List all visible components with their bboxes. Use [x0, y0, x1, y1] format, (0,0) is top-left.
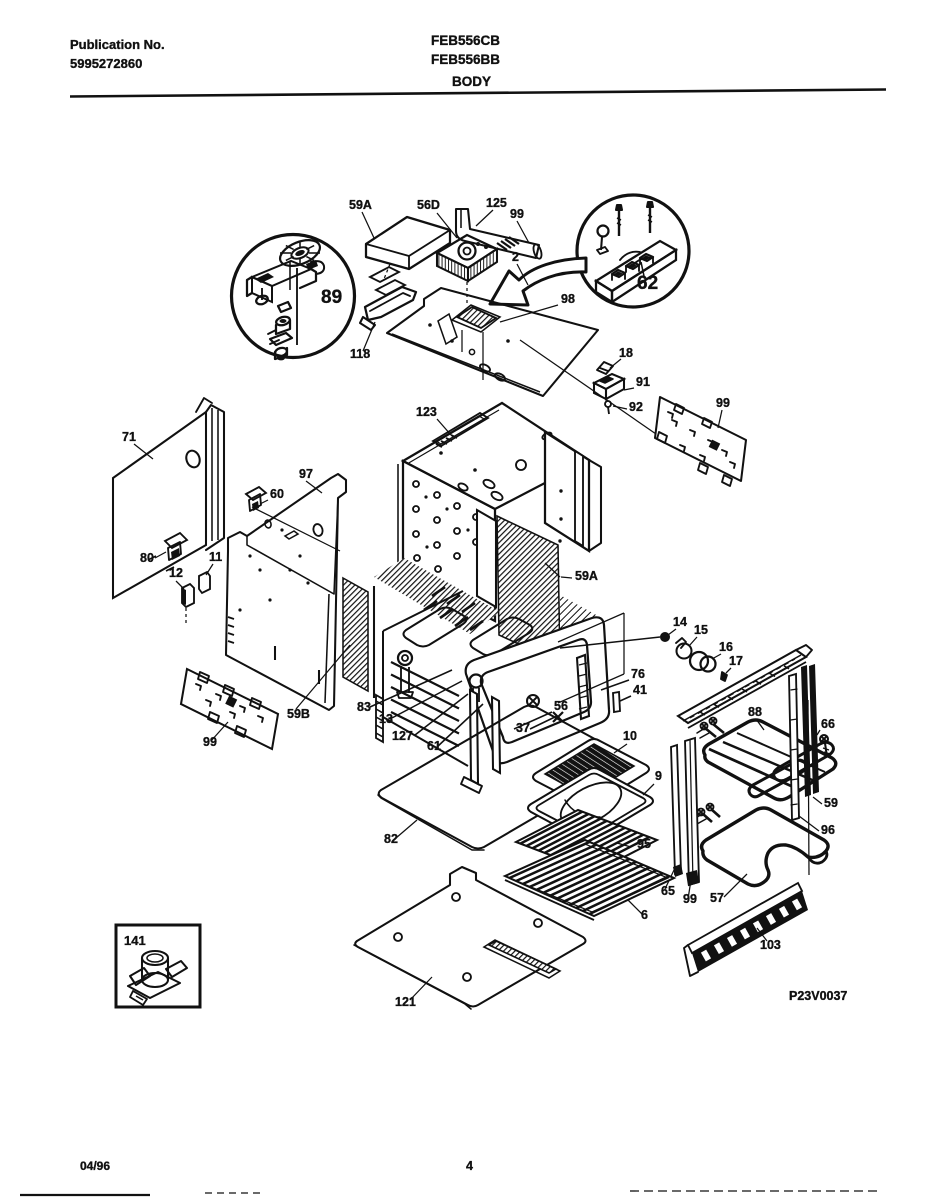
svg-text:65: 65 — [661, 884, 675, 898]
svg-text:98: 98 — [561, 292, 575, 306]
svg-text:76: 76 — [631, 667, 645, 681]
svg-text:96: 96 — [821, 823, 835, 837]
svg-text:103: 103 — [760, 938, 781, 952]
svg-text:89: 89 — [321, 287, 342, 308]
svg-text:127: 127 — [392, 729, 413, 743]
svg-text:56D: 56D — [417, 198, 440, 212]
svg-text:83: 83 — [357, 700, 371, 714]
svg-text:91: 91 — [636, 375, 650, 389]
svg-text:FEB556CB: FEB556CB — [431, 33, 500, 48]
svg-text:6: 6 — [641, 908, 648, 922]
svg-text:11: 11 — [209, 550, 222, 564]
svg-text:59A: 59A — [575, 569, 598, 583]
svg-text:P23V0037: P23V0037 — [789, 989, 847, 1003]
svg-text:99: 99 — [510, 207, 524, 221]
svg-text:41: 41 — [633, 683, 647, 697]
svg-text:Publication No.: Publication No. — [70, 37, 165, 52]
svg-text:59B: 59B — [287, 707, 310, 721]
svg-text:118: 118 — [350, 347, 370, 361]
svg-text:2: 2 — [512, 250, 519, 264]
svg-text:04/96: 04/96 — [80, 1159, 110, 1173]
svg-text:59: 59 — [824, 796, 838, 810]
svg-text:92: 92 — [629, 400, 643, 414]
svg-text:BODY: BODY — [452, 74, 491, 89]
svg-text:125: 125 — [486, 196, 507, 210]
svg-text:99: 99 — [716, 396, 730, 410]
svg-text:71: 71 — [122, 430, 136, 444]
svg-text:37: 37 — [516, 721, 530, 735]
svg-text:59A: 59A — [349, 198, 372, 212]
svg-text:17: 17 — [729, 654, 743, 668]
svg-text:10: 10 — [623, 729, 637, 743]
svg-text:88: 88 — [748, 705, 762, 719]
svg-text:66: 66 — [821, 717, 835, 731]
svg-text:97: 97 — [299, 467, 313, 481]
svg-text:18: 18 — [619, 346, 633, 360]
svg-text:15: 15 — [694, 623, 708, 637]
svg-text:123: 123 — [416, 405, 437, 419]
svg-text:FEB556BB: FEB556BB — [431, 52, 500, 67]
svg-text:60: 60 — [270, 487, 284, 501]
svg-text:82: 82 — [384, 832, 398, 846]
svg-text:141: 141 — [124, 933, 146, 948]
svg-text:16: 16 — [719, 640, 733, 654]
svg-text:95: 95 — [637, 837, 651, 851]
svg-text:9: 9 — [655, 769, 662, 783]
svg-text:57: 57 — [710, 891, 724, 905]
svg-text:80: 80 — [140, 551, 154, 565]
svg-text:4: 4 — [466, 1159, 473, 1173]
svg-text:99: 99 — [683, 892, 697, 906]
svg-text:14: 14 — [673, 615, 687, 629]
svg-text:5995272860: 5995272860 — [70, 56, 142, 71]
svg-text:12: 12 — [169, 566, 183, 580]
